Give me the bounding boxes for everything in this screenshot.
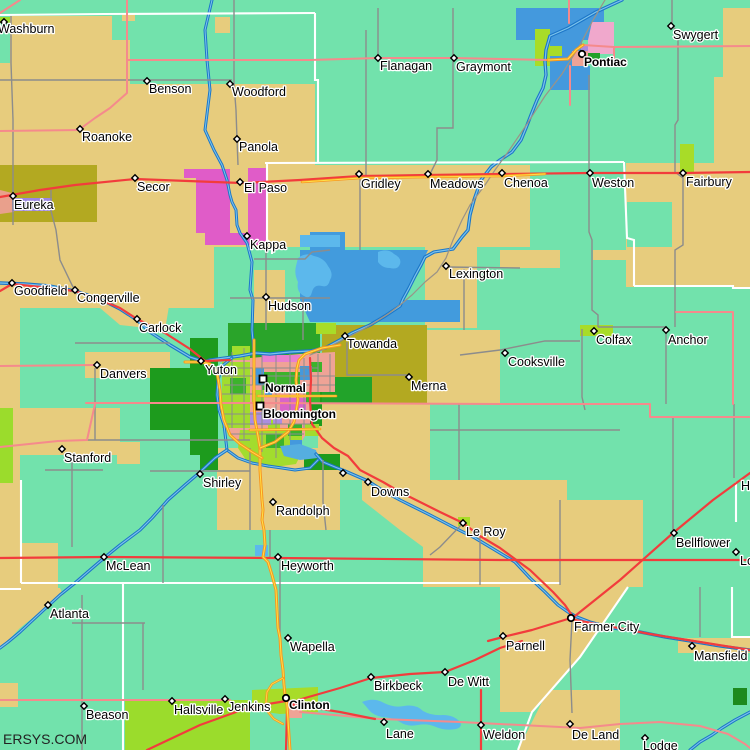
svg-text:Hallsville: Hallsville [174, 703, 223, 717]
svg-text:Atlanta: Atlanta [50, 607, 89, 621]
svg-text:Shirley: Shirley [203, 476, 242, 490]
svg-text:Hudson: Hudson [268, 299, 311, 313]
svg-text:Bloomington: Bloomington [263, 407, 336, 421]
svg-text:Meadows: Meadows [430, 177, 484, 191]
svg-text:Wapella: Wapella [290, 640, 335, 654]
svg-text:Downs: Downs [371, 485, 409, 499]
svg-text:Merna: Merna [411, 379, 446, 393]
svg-text:Panola: Panola [239, 140, 278, 154]
svg-text:Carlock: Carlock [139, 321, 182, 335]
svg-text:Bellflower: Bellflower [676, 536, 730, 550]
svg-text:Flanagan: Flanagan [380, 59, 432, 73]
svg-text:Eureka: Eureka [14, 198, 54, 212]
svg-text:Weldon: Weldon [483, 728, 525, 742]
svg-text:Lodge: Lodge [643, 739, 678, 750]
svg-text:Parnell: Parnell [506, 639, 545, 653]
svg-text:Lane: Lane [386, 727, 414, 741]
svg-text:Farmer City: Farmer City [574, 620, 640, 634]
svg-text:Goodfield: Goodfield [14, 284, 68, 298]
svg-text:Kappa: Kappa [250, 238, 286, 252]
svg-text:Towanda: Towanda [347, 337, 397, 351]
svg-text:Roanoke: Roanoke [82, 130, 132, 144]
svg-text:McLean: McLean [106, 559, 151, 573]
svg-text:De Witt: De Witt [448, 675, 490, 689]
svg-text:Danvers: Danvers [100, 367, 147, 381]
svg-text:Birkbeck: Birkbeck [374, 679, 423, 693]
svg-text:Graymont: Graymont [456, 60, 511, 74]
svg-text:Fairbury: Fairbury [686, 175, 733, 189]
svg-text:Weston: Weston [592, 176, 634, 190]
svg-text:Le Roy: Le Roy [466, 525, 506, 539]
svg-text:Stanford: Stanford [64, 451, 111, 465]
svg-text:Normal: Normal [265, 381, 306, 395]
svg-text:Swygert: Swygert [673, 28, 719, 42]
svg-text:Beason: Beason [86, 708, 128, 722]
svg-text:Lo: Lo [740, 554, 750, 568]
svg-text:Congerville: Congerville [77, 291, 140, 305]
svg-text:ERSYS.COM: ERSYS.COM [3, 731, 87, 747]
svg-text:Colfax: Colfax [596, 333, 632, 347]
svg-text:Woodford: Woodford [232, 85, 286, 99]
svg-text:Secor: Secor [137, 180, 170, 194]
svg-text:Lexington: Lexington [449, 267, 503, 281]
svg-text:De Land: De Land [572, 728, 619, 742]
svg-text:Jenkins: Jenkins [228, 700, 270, 714]
svg-text:H: H [741, 479, 750, 493]
svg-text:Benson: Benson [149, 82, 191, 96]
svg-text:Heyworth: Heyworth [281, 559, 334, 573]
svg-text:Anchor: Anchor [668, 333, 708, 347]
svg-text:Gridley: Gridley [361, 177, 401, 191]
svg-text:Yuton: Yuton [205, 363, 237, 377]
svg-text:Clinton: Clinton [289, 698, 330, 712]
svg-text:Washburn: Washburn [0, 22, 55, 36]
svg-text:Randolph: Randolph [276, 504, 330, 518]
svg-text:Chenoa: Chenoa [504, 176, 548, 190]
svg-text:Pontiac: Pontiac [584, 55, 627, 69]
svg-text:Mansfield: Mansfield [694, 649, 748, 663]
svg-text:El Paso: El Paso [244, 181, 287, 195]
svg-text:Cooksville: Cooksville [508, 355, 565, 369]
